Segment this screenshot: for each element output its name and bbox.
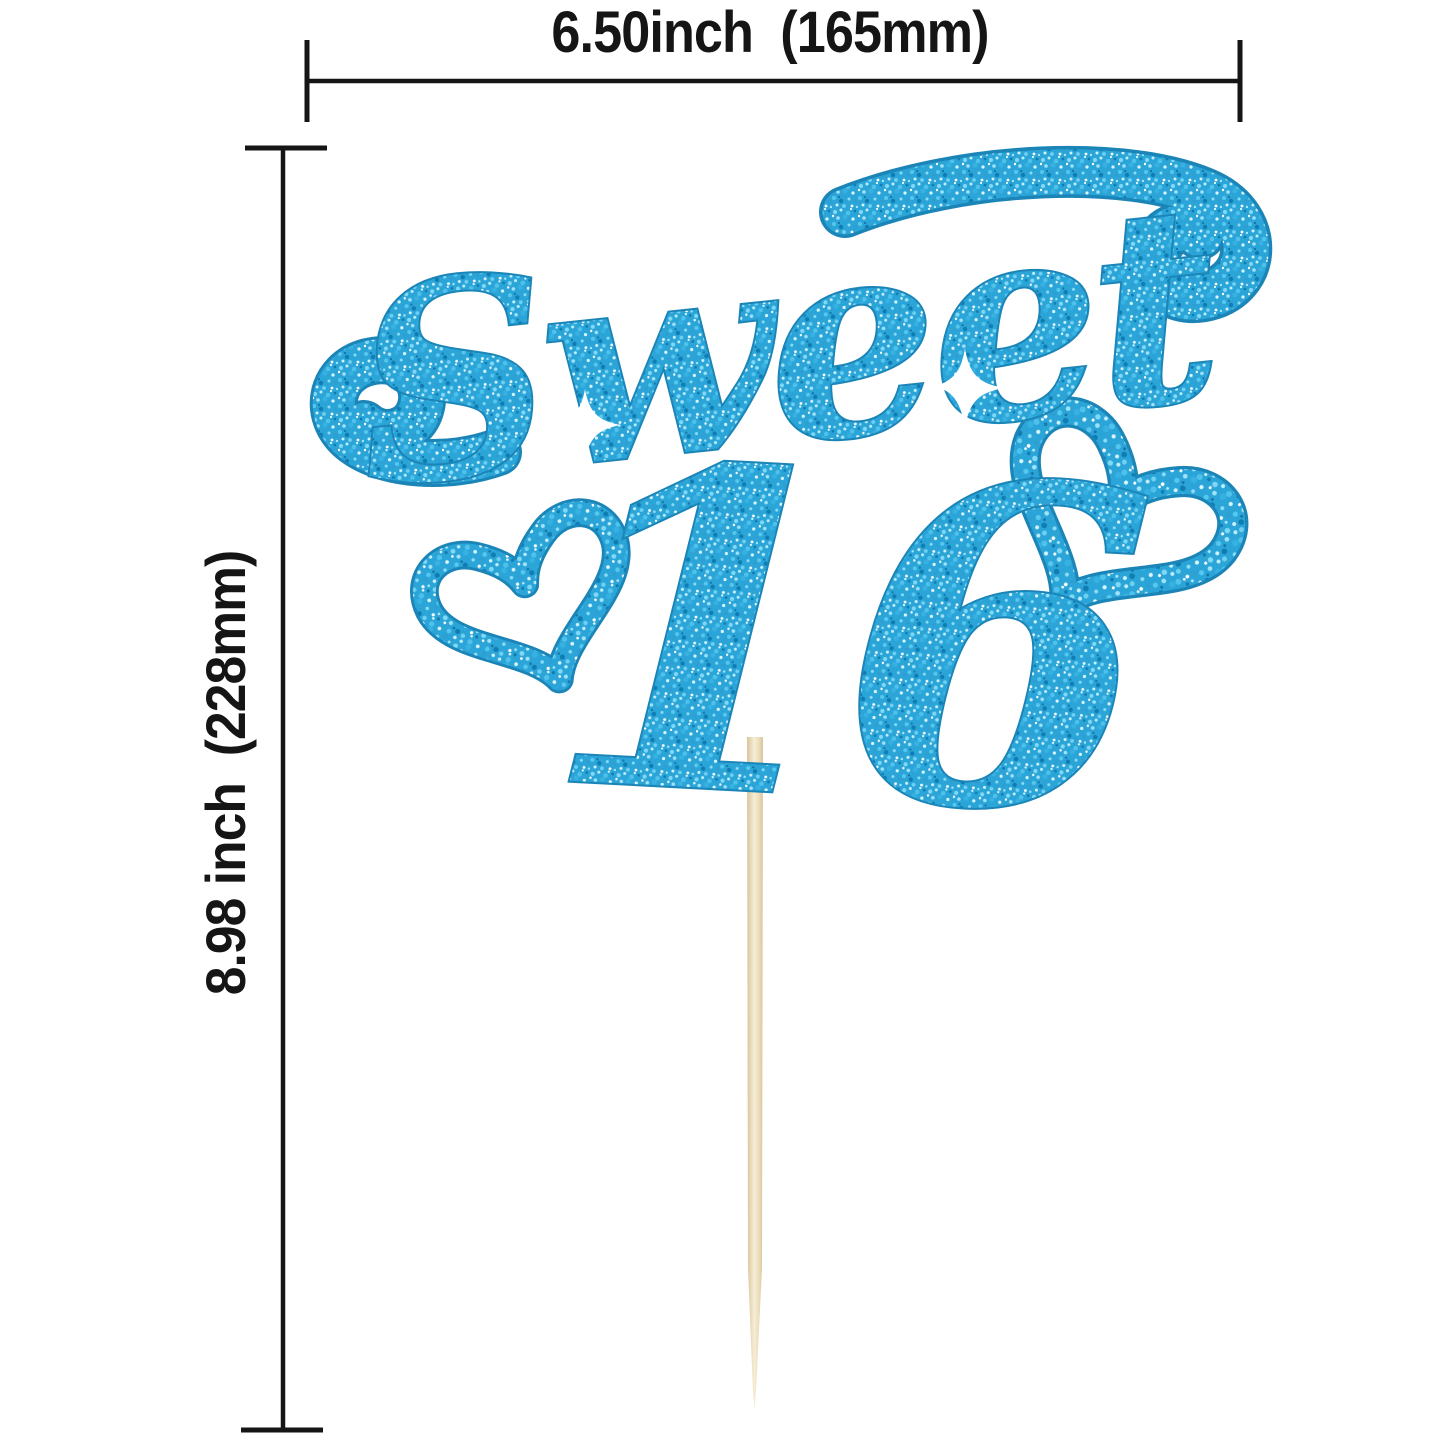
- width-dimension-label: 6.50inch (165mm): [410, 2, 1130, 68]
- glitter-card: Sweet 16: [334, 143, 1248, 914]
- height-dimension-label: 8.98 inch (228mm): [196, 451, 260, 1095]
- cake-topper: Sweet 16: [334, 143, 1248, 1410]
- topper-number: 16: [536, 367, 1152, 914]
- product-dimension-image: Sweet 16 6.50inch (165mm) 8.98 inch (228…: [0, 0, 1445, 1445]
